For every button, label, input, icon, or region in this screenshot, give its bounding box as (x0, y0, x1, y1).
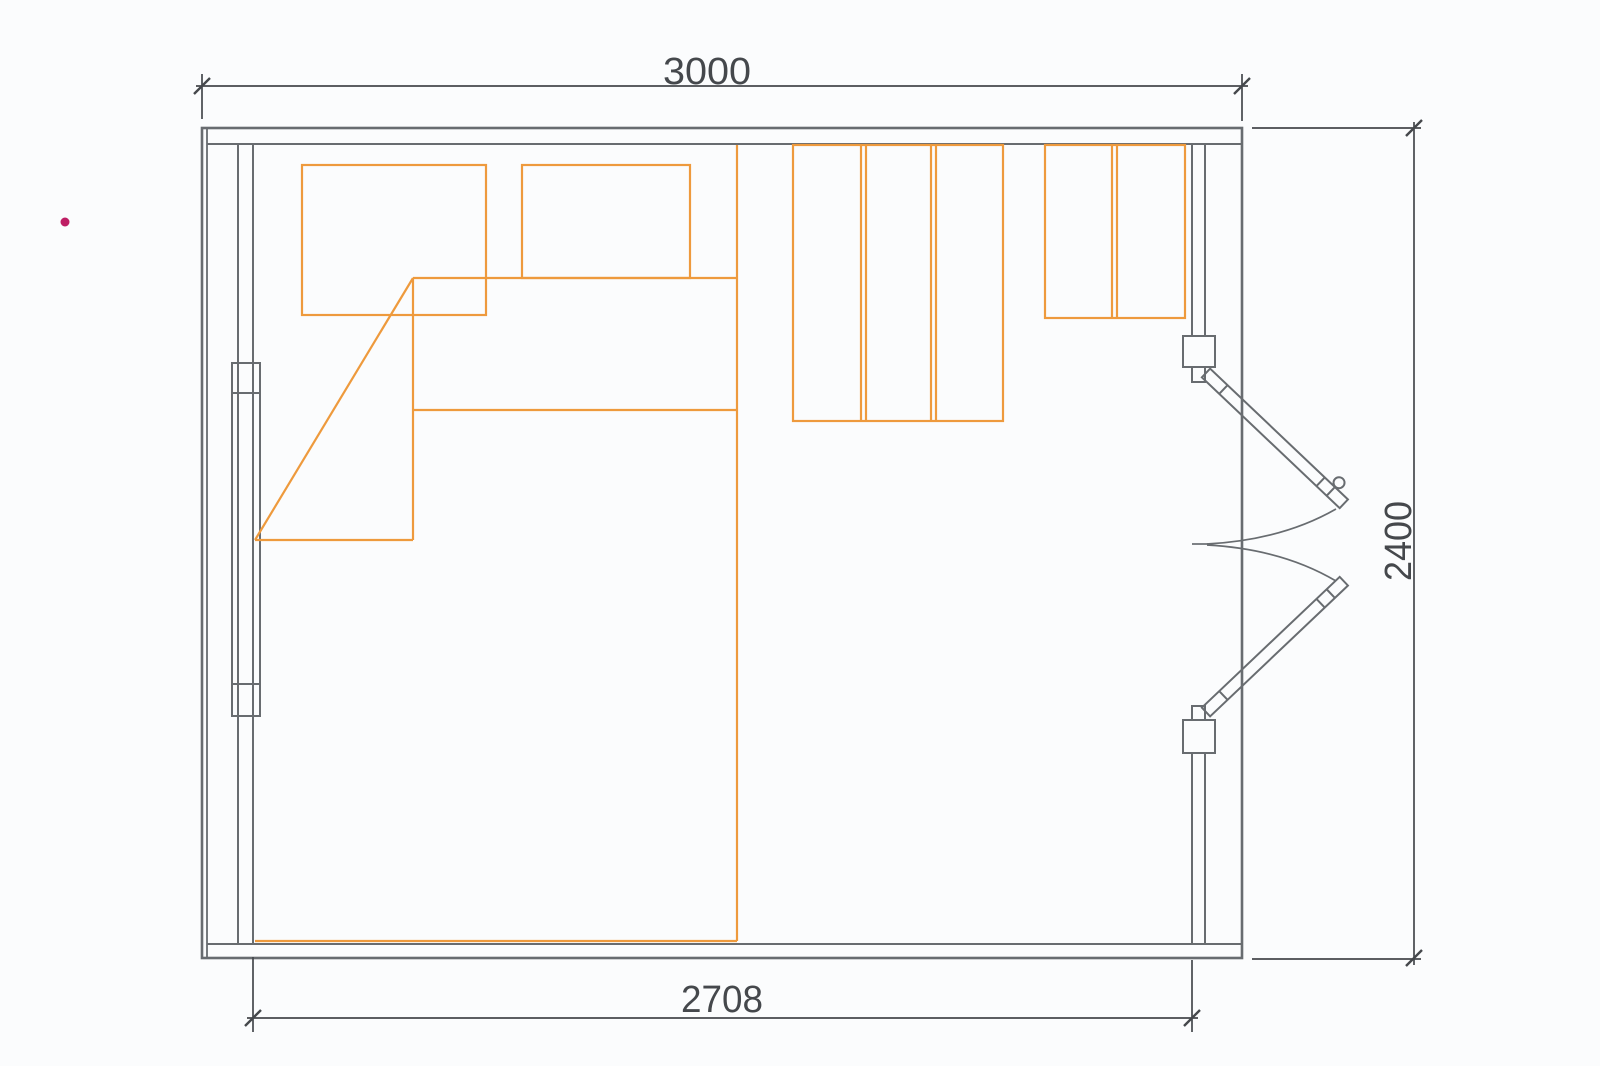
dimension-label-right: 2400 (1378, 501, 1420, 581)
dimension-label-bottom: 2708 (681, 979, 763, 1021)
marker-dot (61, 218, 70, 227)
dimension-label-top: 3000 (663, 51, 751, 93)
canvas-background (0, 0, 1600, 1066)
floor-plan-canvas: 3000 2708 2400 (0, 0, 1600, 1066)
